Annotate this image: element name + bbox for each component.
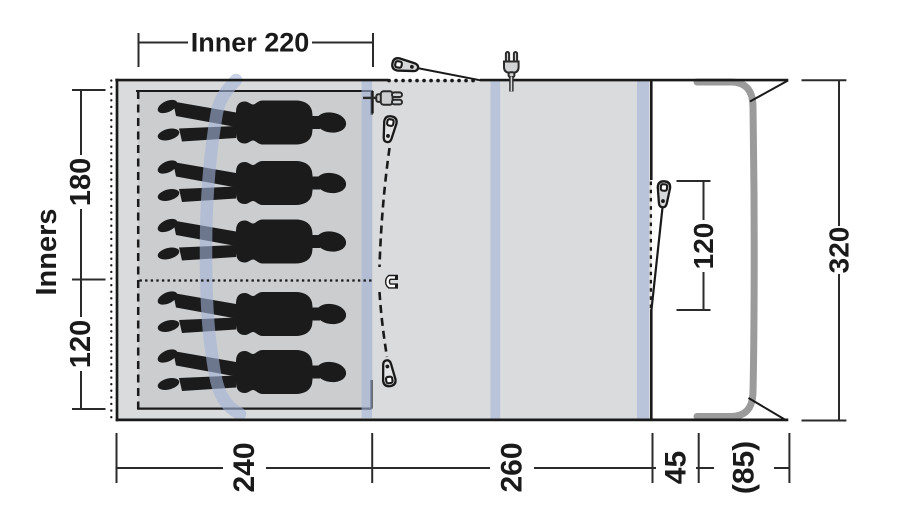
svg-text:Inner 220: Inner 220 <box>191 28 310 58</box>
svg-text:120: 120 <box>65 320 97 368</box>
svg-text:45: 45 <box>660 451 693 484</box>
svg-text:260: 260 <box>496 442 529 492</box>
svg-text:320: 320 <box>824 227 855 274</box>
svg-text:120: 120 <box>688 223 719 270</box>
svg-text:(85): (85) <box>728 441 761 494</box>
svg-text:Inners: Inners <box>31 208 63 295</box>
svg-text:240: 240 <box>228 442 261 492</box>
svg-text:180: 180 <box>65 158 97 206</box>
